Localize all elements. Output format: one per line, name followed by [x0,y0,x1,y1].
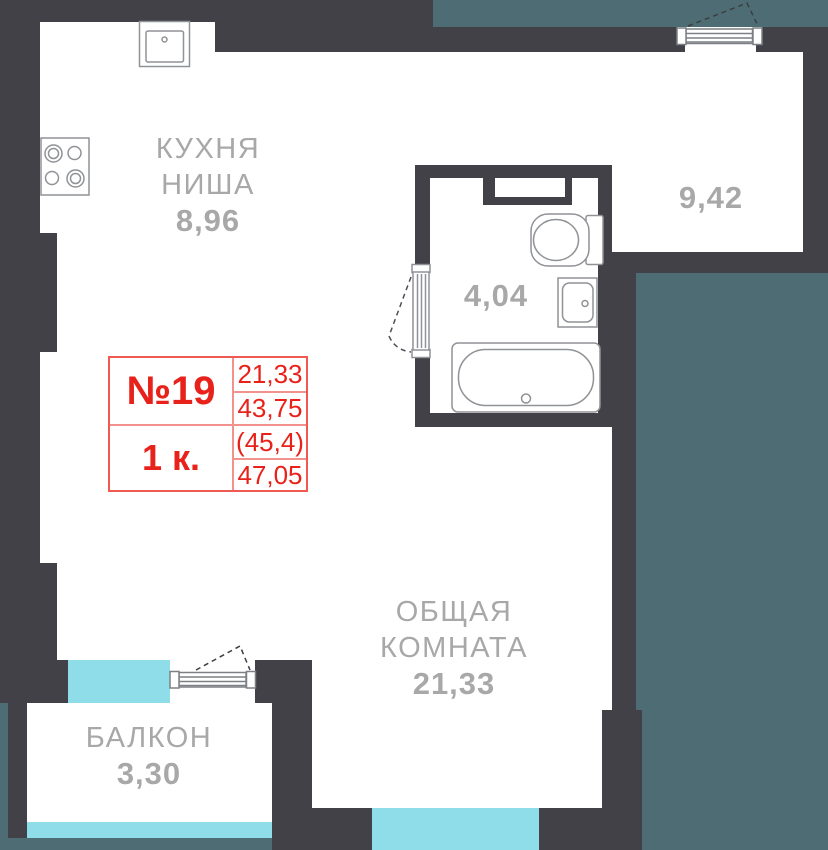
floor-plan: КУХНЯ НИША 8,96 4,04 9,42 ОБЩАЯ КОМНАТА … [0,0,828,850]
wall-balcony-left [8,703,27,838]
bathtub-icon [452,343,600,412]
wall-balcony-right-top [255,660,312,703]
wall-bottom-1 [312,808,372,850]
living-name-line1: ОБЩАЯ [396,596,513,628]
wall-under-room-top-right [598,252,828,273]
kitchen-sink-icon [140,22,190,67]
card-rooms-type: 1 к. [110,426,232,490]
living-name-line2: КОМНАТА [380,632,528,664]
balcony-name: БАЛКОН [86,722,212,754]
card-area-reduced: (45,4) [234,426,306,458]
bathroom-wall-bottom [415,413,612,427]
card-area-no-balcony: 43,75 [234,393,306,424]
living-area: 21,33 [413,666,496,701]
wall-top-right [433,27,828,52]
wall-living-right-1 [612,273,636,710]
living-room-window [372,808,539,850]
toilet-icon [531,214,603,266]
balcony-outer-strip-bottom [0,838,272,850]
room-label-balcony: БАЛКОН 3,30 [86,720,212,793]
adjacent-area-top [433,0,828,27]
kitchen-area: 8,96 [176,203,240,238]
card-area-living: 21,33 [234,358,306,391]
room-top-right-area: 9,42 [679,180,743,215]
room-label-living: ОБЩАЯ КОМНАТА 21,33 [380,594,528,703]
wall-left-2 [0,233,57,352]
wall-right-top [803,52,828,273]
room-label-kitchen: КУХНЯ НИША 8,96 [156,131,260,240]
card-area-total: 47,05 [234,460,306,490]
wall-top-left [0,0,215,22]
balcony-outer-strip-left [0,703,8,850]
bathroom-door-swing [389,277,411,352]
balcony-door-opening [170,660,255,703]
balcony-area: 3,30 [117,756,181,791]
wall-top-block [215,0,433,52]
bathroom-door-opening [415,265,430,357]
wall-left-3 [0,352,40,563]
wall-left-4 [0,563,57,660]
room-label-bathroom: 4,04 [464,278,528,314]
balcony-glazing-bottom [27,822,272,838]
wall-bottom-2 [539,808,642,850]
bathroom-wall-right [598,165,612,427]
adjacent-area-right [636,273,828,850]
bathroom-sink-icon [558,278,597,327]
stove-icon [41,138,89,195]
kitchen-name-line2: НИША [161,169,255,201]
window-opening-top [677,27,762,45]
apartment-info-card: №19 1 к. 21,33 43,75 (45,4) 47,05 [108,356,308,492]
card-apartment-number: №19 [110,358,232,424]
balcony-window [68,660,170,703]
wall-left-5 [0,660,68,703]
room-label-top-right: 9,42 [679,180,743,216]
kitchen-name-line1: КУХНЯ [156,133,260,165]
wall-left-1 [0,22,40,233]
bathroom-duct-niche [495,178,565,197]
bathroom-area: 4,04 [464,278,528,313]
wall-balcony-right [272,703,312,850]
window-opening-top-inner [685,44,756,53]
